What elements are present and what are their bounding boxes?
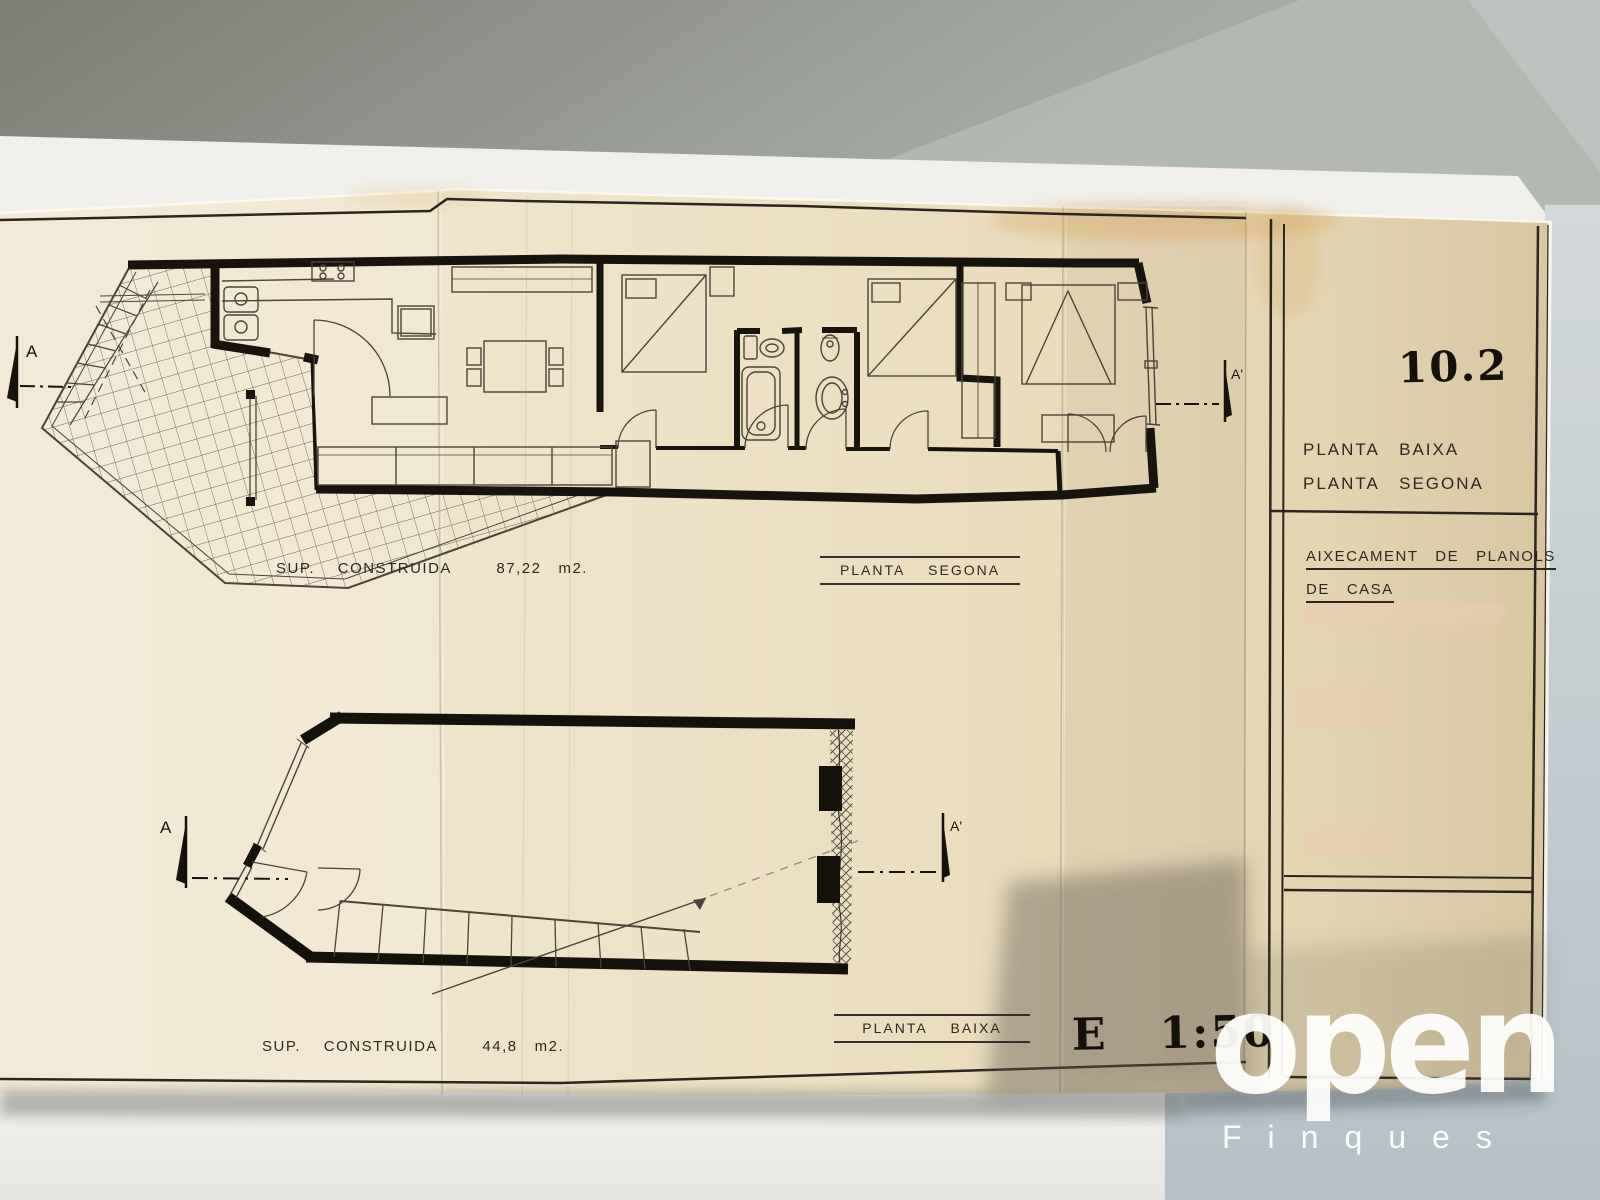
upper-plan-caption: PLANTA SEGONA — [820, 556, 1020, 585]
sheet-number: 10.2 — [1397, 341, 1509, 393]
title-plan-name-1: PLANTA BAIXA — [1303, 440, 1459, 460]
upper-section-end-label: A' — [1231, 366, 1243, 382]
lower-plan-caption: PLANTA BAIXA — [834, 1014, 1030, 1043]
photo-of-floor-plan: SUP. CONSTRUIDA 87,22 m2. PLANTA SEGONA … — [0, 0, 1600, 1200]
project-title-line1: AIXECAMENT DE PLANOLS — [1306, 548, 1556, 570]
scale-label: E 1:50 — [1072, 1006, 1276, 1061]
upper-area-label: SUP. CONSTRUIDA 87,22 m2. — [276, 560, 588, 577]
lower-section-start-label: A — [160, 818, 171, 838]
upper-section-start-label: A — [26, 342, 37, 362]
project-title-line2: DE CASA — [1306, 581, 1394, 603]
lower-section-end-label: A' — [950, 818, 962, 834]
title-plan-name-2: PLANTA SEGONA — [1303, 474, 1484, 494]
lower-area-label: SUP. CONSTRUIDA 44,8 m2. — [262, 1038, 564, 1055]
